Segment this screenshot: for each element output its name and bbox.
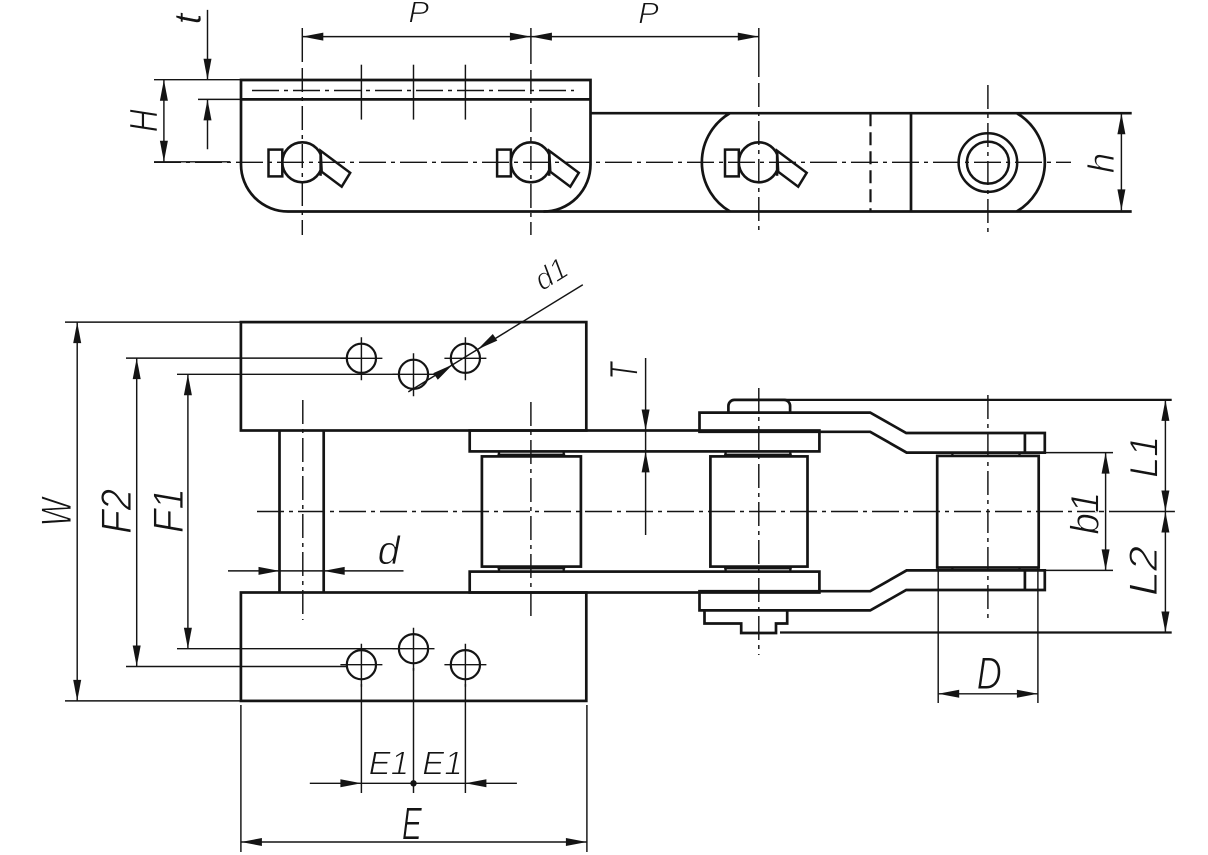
svg-text:h: h (1081, 153, 1122, 174)
svg-text:W: W (33, 496, 81, 526)
svg-text:D: D (977, 648, 1002, 699)
svg-text:t: t (168, 12, 210, 24)
svg-text:P: P (408, 0, 429, 30)
svg-text:F2: F2 (93, 489, 141, 534)
svg-text:d: d (378, 529, 402, 573)
svg-text:E1: E1 (422, 745, 462, 782)
svg-text:P: P (638, 0, 659, 30)
svg-text:E1: E1 (369, 745, 409, 782)
svg-text:H: H (122, 109, 166, 132)
svg-text:T: T (603, 361, 647, 380)
svg-text:L1: L1 (1123, 436, 1167, 478)
svg-text:E: E (402, 798, 423, 850)
svg-text:L2: L2 (1122, 546, 1166, 596)
svg-text:b1: b1 (1063, 492, 1107, 535)
svg-text:F1: F1 (145, 488, 193, 533)
